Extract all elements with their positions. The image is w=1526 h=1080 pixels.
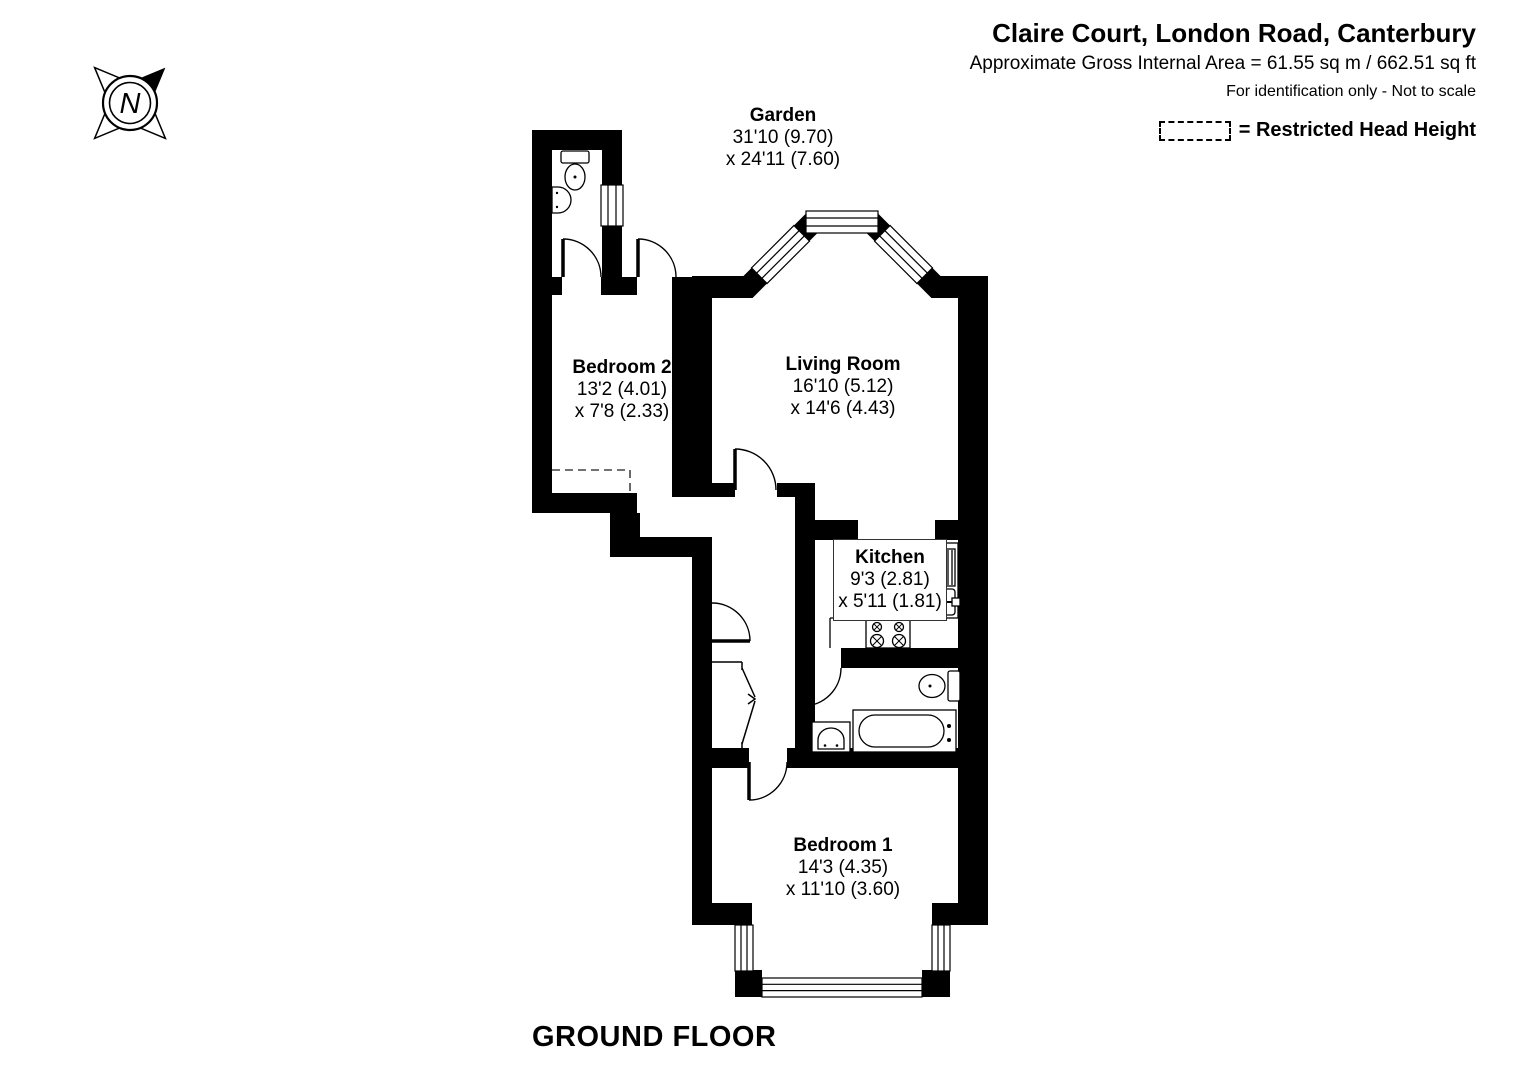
bedroom1-name: Bedroom 1 [786,835,900,857]
bay-window-left [752,226,810,284]
compass-north-letter: N [120,88,141,120]
wc-toilet-icon [561,151,589,190]
bedroom1-bay-window-left [735,925,753,971]
bay-window-center [806,211,878,233]
kitchen-label: Kitchen 9'3 (2.81) x 5'11 (1.81) [833,539,947,621]
bedroom2-name: Bedroom 2 [572,357,671,379]
kitchen-width: x 5'11 (1.81) [834,591,946,613]
bedroom2-label: Bedroom 2 13'2 (4.01) x 7'8 (2.33) [572,357,671,423]
bedroom1-bay-window-front [762,978,922,997]
restricted-head-height-line [552,470,630,493]
living-room-width: x 14'6 (4.43) [785,398,900,420]
garden-label: Garden 31'10 (9.70) x 24'11 (7.60) [726,105,840,171]
kitchen-name: Kitchen [834,547,946,569]
bathtub-icon [853,710,956,752]
living-room-length: 16'10 (5.12) [785,376,900,398]
bathroom-basin-icon [812,722,850,752]
bedroom2-width: x 7'8 (2.33) [572,401,671,423]
bathroom-toilet-icon [919,671,960,701]
compass-icon: N [95,68,166,139]
bedroom1-length: 14'3 (4.35) [786,857,900,879]
bay-window-right [875,226,933,284]
bedroom1-label: Bedroom 1 14'3 (4.35) x 11'10 (3.60) [786,835,900,901]
bedroom1-bay-window-right [932,925,950,971]
garden-name: Garden [726,105,840,127]
floor-title: GROUND FLOOR [532,1021,776,1054]
hall-closet [712,662,755,750]
floorplan-page: Claire Court, London Road, Canterbury Ap… [0,0,1526,1080]
wc-basin-icon [552,187,571,213]
bedroom1-width: x 11'10 (3.60) [786,879,900,901]
bedroom2-length: 13'2 (4.01) [572,379,671,401]
living-room-name: Living Room [785,354,900,376]
garden-width: x 24'11 (7.60) [726,149,840,171]
kitchen-length: 9'3 (2.81) [834,569,946,591]
wc-window [601,185,623,226]
living-room-label: Living Room 16'10 (5.12) x 14'6 (4.43) [785,354,900,420]
hob-icon [866,618,910,648]
garden-length: 31'10 (9.70) [726,127,840,149]
bifold-door-icon [742,668,755,744]
